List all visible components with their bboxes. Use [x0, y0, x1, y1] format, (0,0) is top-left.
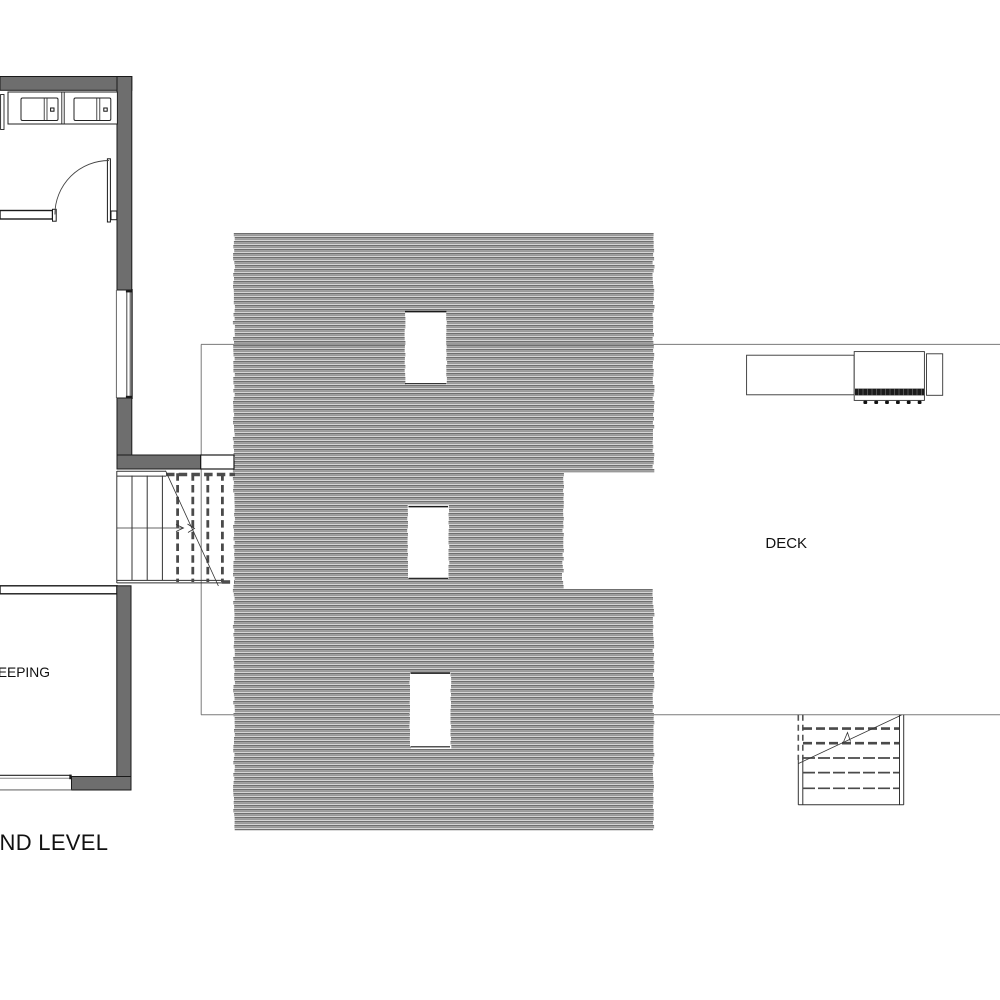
svg-text:EEPING: EEPING [0, 665, 50, 680]
svg-text:ND LEVEL: ND LEVEL [0, 830, 108, 855]
svg-text:DECK: DECK [765, 535, 807, 552]
